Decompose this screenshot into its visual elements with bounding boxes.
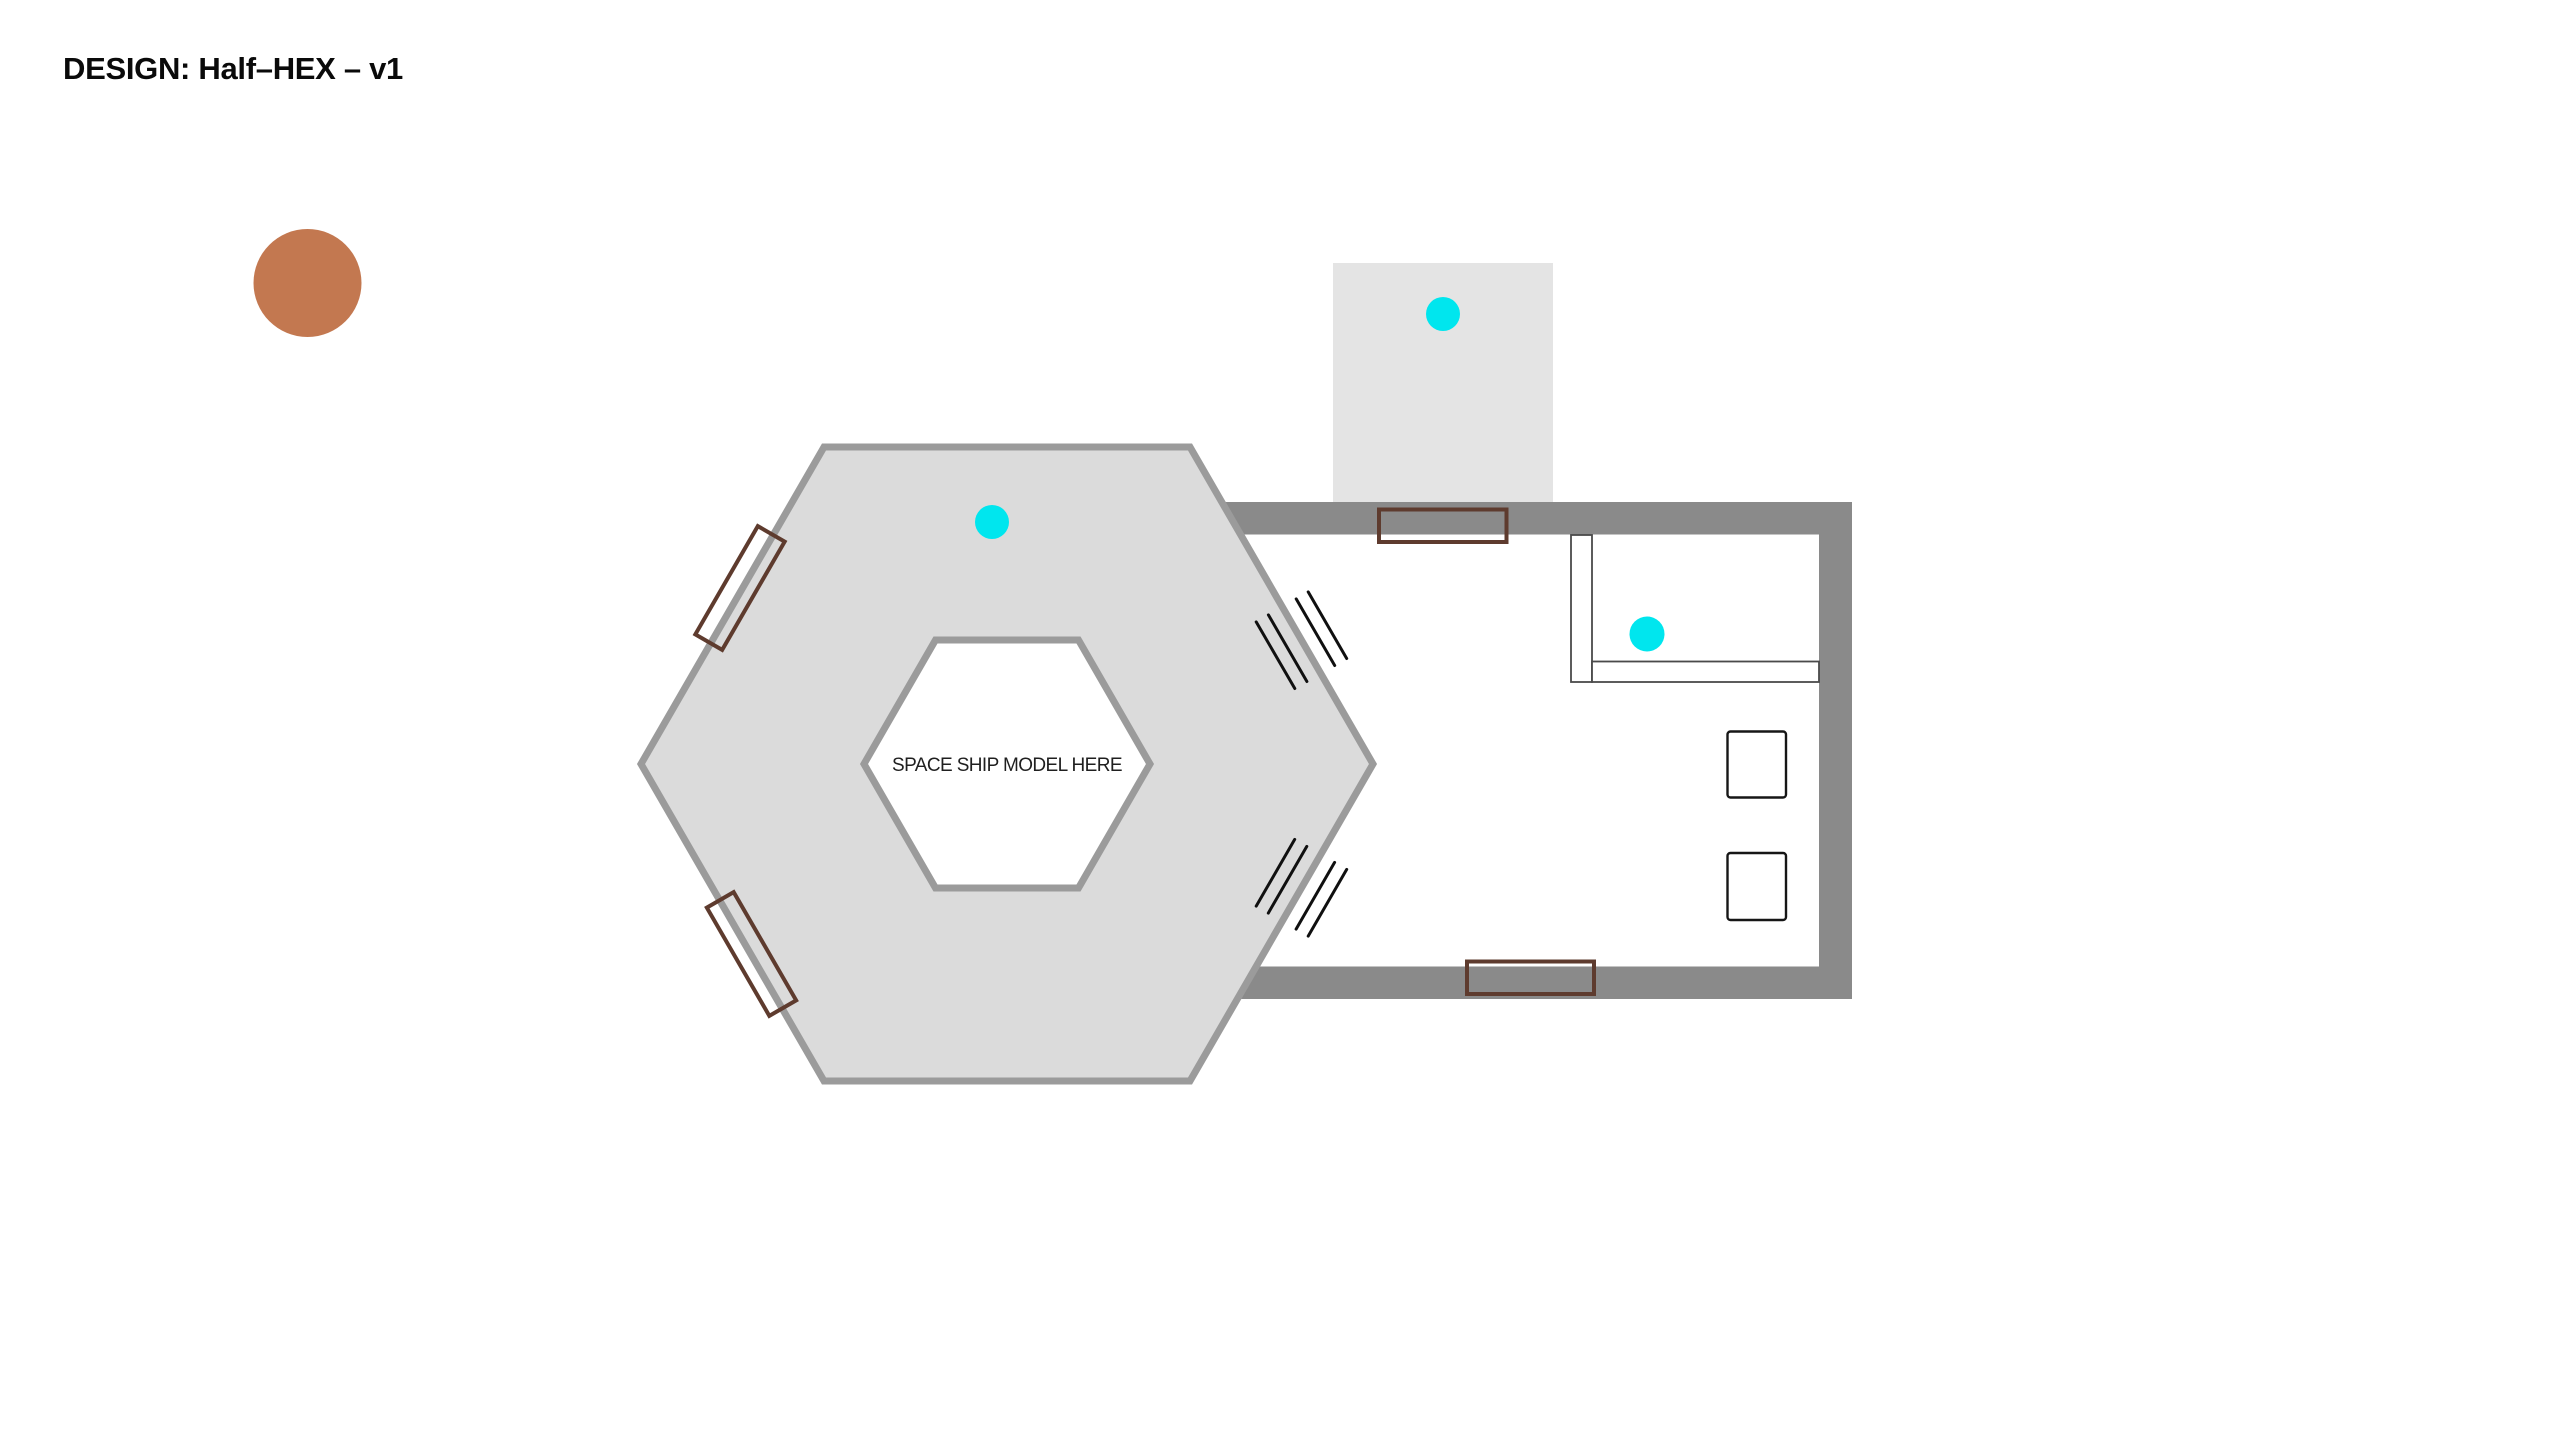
room-wall-top [1213, 502, 1852, 535]
cyan-marker-room [1630, 617, 1665, 652]
counter-shelf [1592, 662, 1819, 683]
furniture-square-top [1728, 732, 1787, 798]
l-counter [1571, 535, 1819, 682]
center-hexagon-label: SPACE SHIP MODEL HERE [892, 755, 1122, 776]
cyan-marker-hexagon [975, 505, 1009, 539]
design-canvas: DESIGN: Half–HEX – v1 SPACE SHIP MODEL H… [0, 0, 2560, 1440]
room-wall-right [1819, 502, 1852, 999]
counter-vertical [1571, 535, 1592, 682]
furniture-square-bottom [1728, 853, 1787, 920]
cyan-marker-porch [1426, 297, 1460, 331]
floor-plan-svg: SPACE SHIP MODEL HERE [0, 0, 2560, 1440]
orange-swatch [254, 229, 362, 337]
